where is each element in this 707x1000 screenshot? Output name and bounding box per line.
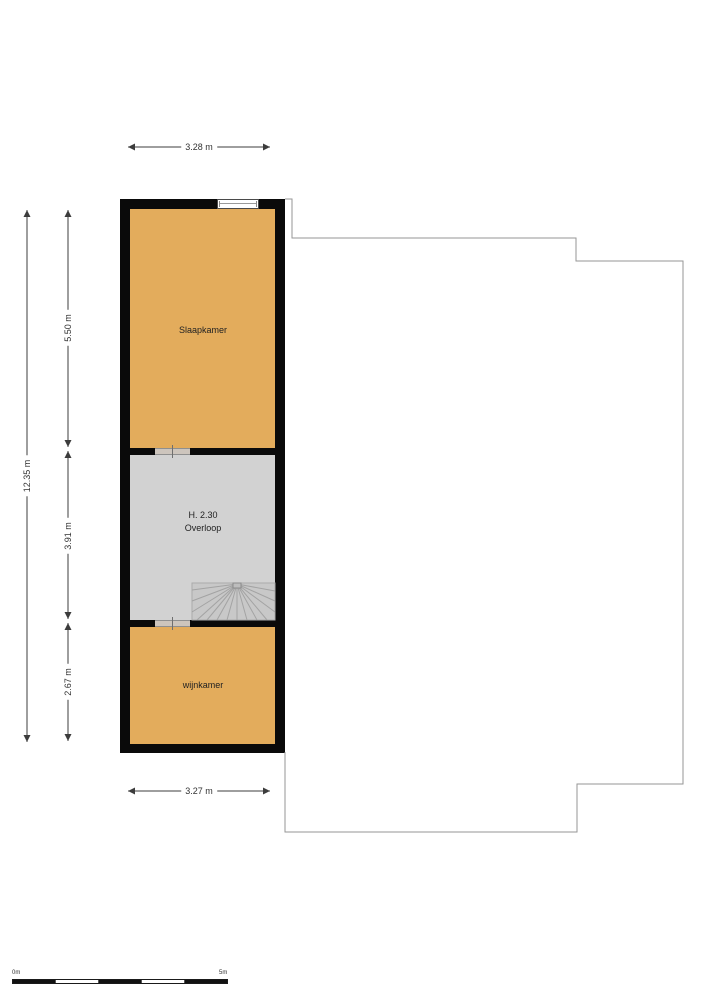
scale-bar-segment — [141, 980, 185, 983]
room-label-slaapkamer: Slaapkamer — [179, 325, 227, 335]
dim-label-bottom-width: 3.27 m — [181, 786, 217, 796]
room-height-label-overloop: H. 2.30 — [188, 510, 217, 520]
plan-linework — [0, 0, 707, 1000]
scale-bar — [12, 979, 228, 984]
dim-label-total-height: 12.35 m — [22, 456, 32, 497]
scale-bar-segment — [185, 980, 227, 983]
dim-label-seg2: 3.91 m — [63, 518, 73, 554]
scale-bar-end-label: 5m — [219, 970, 227, 976]
lower-floor-outline — [285, 199, 683, 832]
floorplan-canvas: Slaapkamer H. 2.30 Overloop wijnkamer 3.… — [0, 0, 707, 1000]
stairs-newel — [233, 583, 241, 588]
room-label-wijnkamer: wijnkamer — [183, 680, 224, 690]
stairs — [192, 583, 275, 620]
scale-bar-segment — [13, 980, 55, 983]
dim-label-seg1: 5.50 m — [63, 310, 73, 346]
scale-bar-segment — [99, 980, 141, 983]
dim-label-seg3: 2.67 m — [63, 664, 73, 700]
room-label-overloop: Overloop — [185, 523, 222, 533]
scale-bar-segment — [55, 980, 99, 983]
dim-label-top-width: 3.28 m — [181, 142, 217, 152]
scale-bar-start-label: 0m — [12, 970, 20, 976]
